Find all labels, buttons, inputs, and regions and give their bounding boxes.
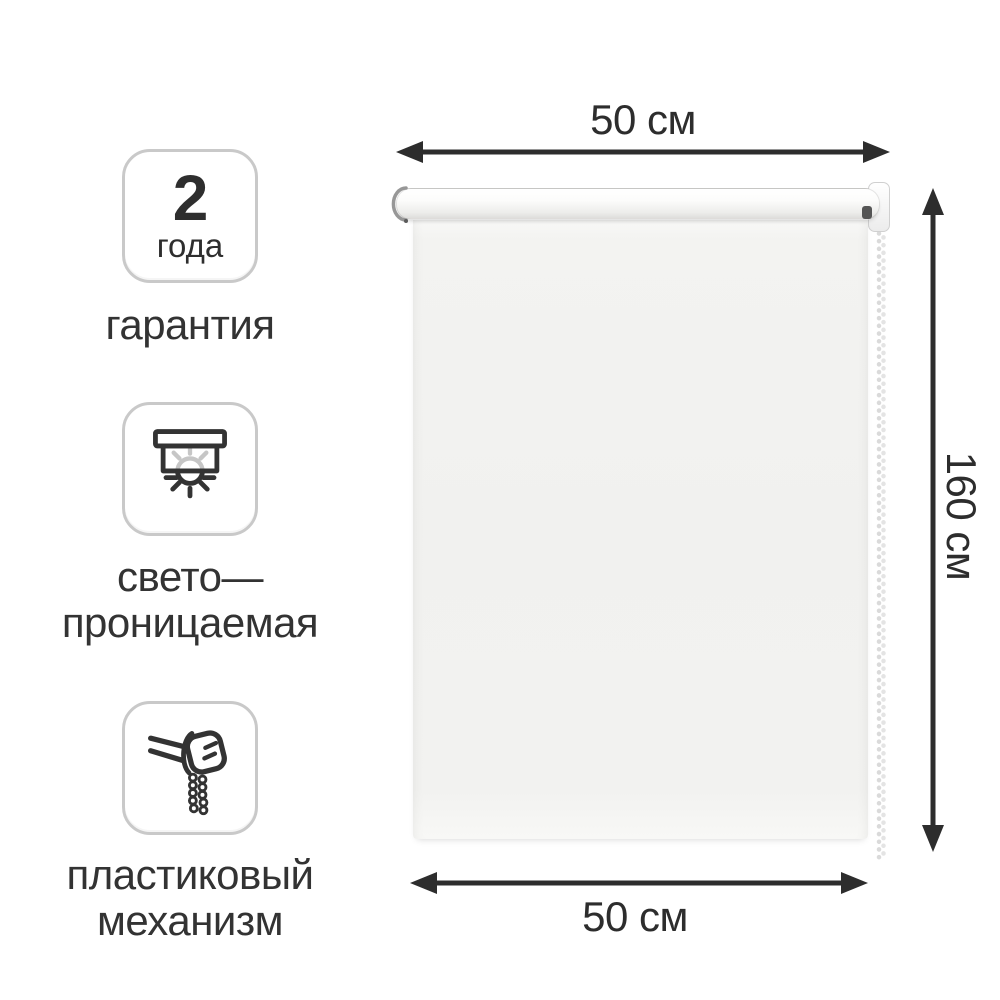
feature-light-label-line1: свето—	[0, 554, 380, 600]
dimension-arrow-side	[919, 186, 947, 854]
warranty-2-years-badge: 2 года	[122, 149, 258, 283]
feature-warranty-label-line: гарантия	[0, 302, 380, 348]
feature-light-transmitting-label: свето— проницаемая	[0, 554, 380, 646]
feature-mechanism-label-line2: механизм	[0, 898, 380, 944]
dimension-width-bottom-label: 50 см	[394, 893, 876, 941]
warranty-years-unit: года	[157, 229, 224, 264]
roller-tube	[396, 188, 880, 220]
feature-plastic-mechanism: пластиковый механизм	[0, 701, 380, 944]
chain-mechanism-clip	[862, 206, 872, 219]
roller-mechanism-badge	[122, 701, 258, 835]
blind-with-sun-badge	[122, 402, 258, 536]
feature-warranty-label: гарантия	[0, 302, 380, 348]
left-mounting-bracket	[387, 184, 411, 226]
blind-fabric-panel	[413, 214, 868, 839]
dimension-arrow-top	[394, 138, 892, 166]
warranty-years-value: 2	[173, 168, 208, 229]
roller-mechanism-chain-icon	[142, 720, 238, 816]
blind-with-sun-icon	[142, 421, 238, 517]
product-infographic: 2 года гарантия	[0, 0, 1000, 1000]
feature-light-label-line2: проницаемая	[0, 600, 380, 646]
feature-light-transmitting: свето— проницаемая	[0, 402, 380, 646]
feature-plastic-mechanism-label: пластиковый механизм	[0, 852, 380, 944]
dimension-width-top-label: 50 см	[394, 96, 892, 144]
bead-chain	[874, 212, 888, 868]
feature-mechanism-label-line1: пластиковый	[0, 852, 380, 898]
feature-warranty: 2 года гарантия	[0, 149, 380, 348]
